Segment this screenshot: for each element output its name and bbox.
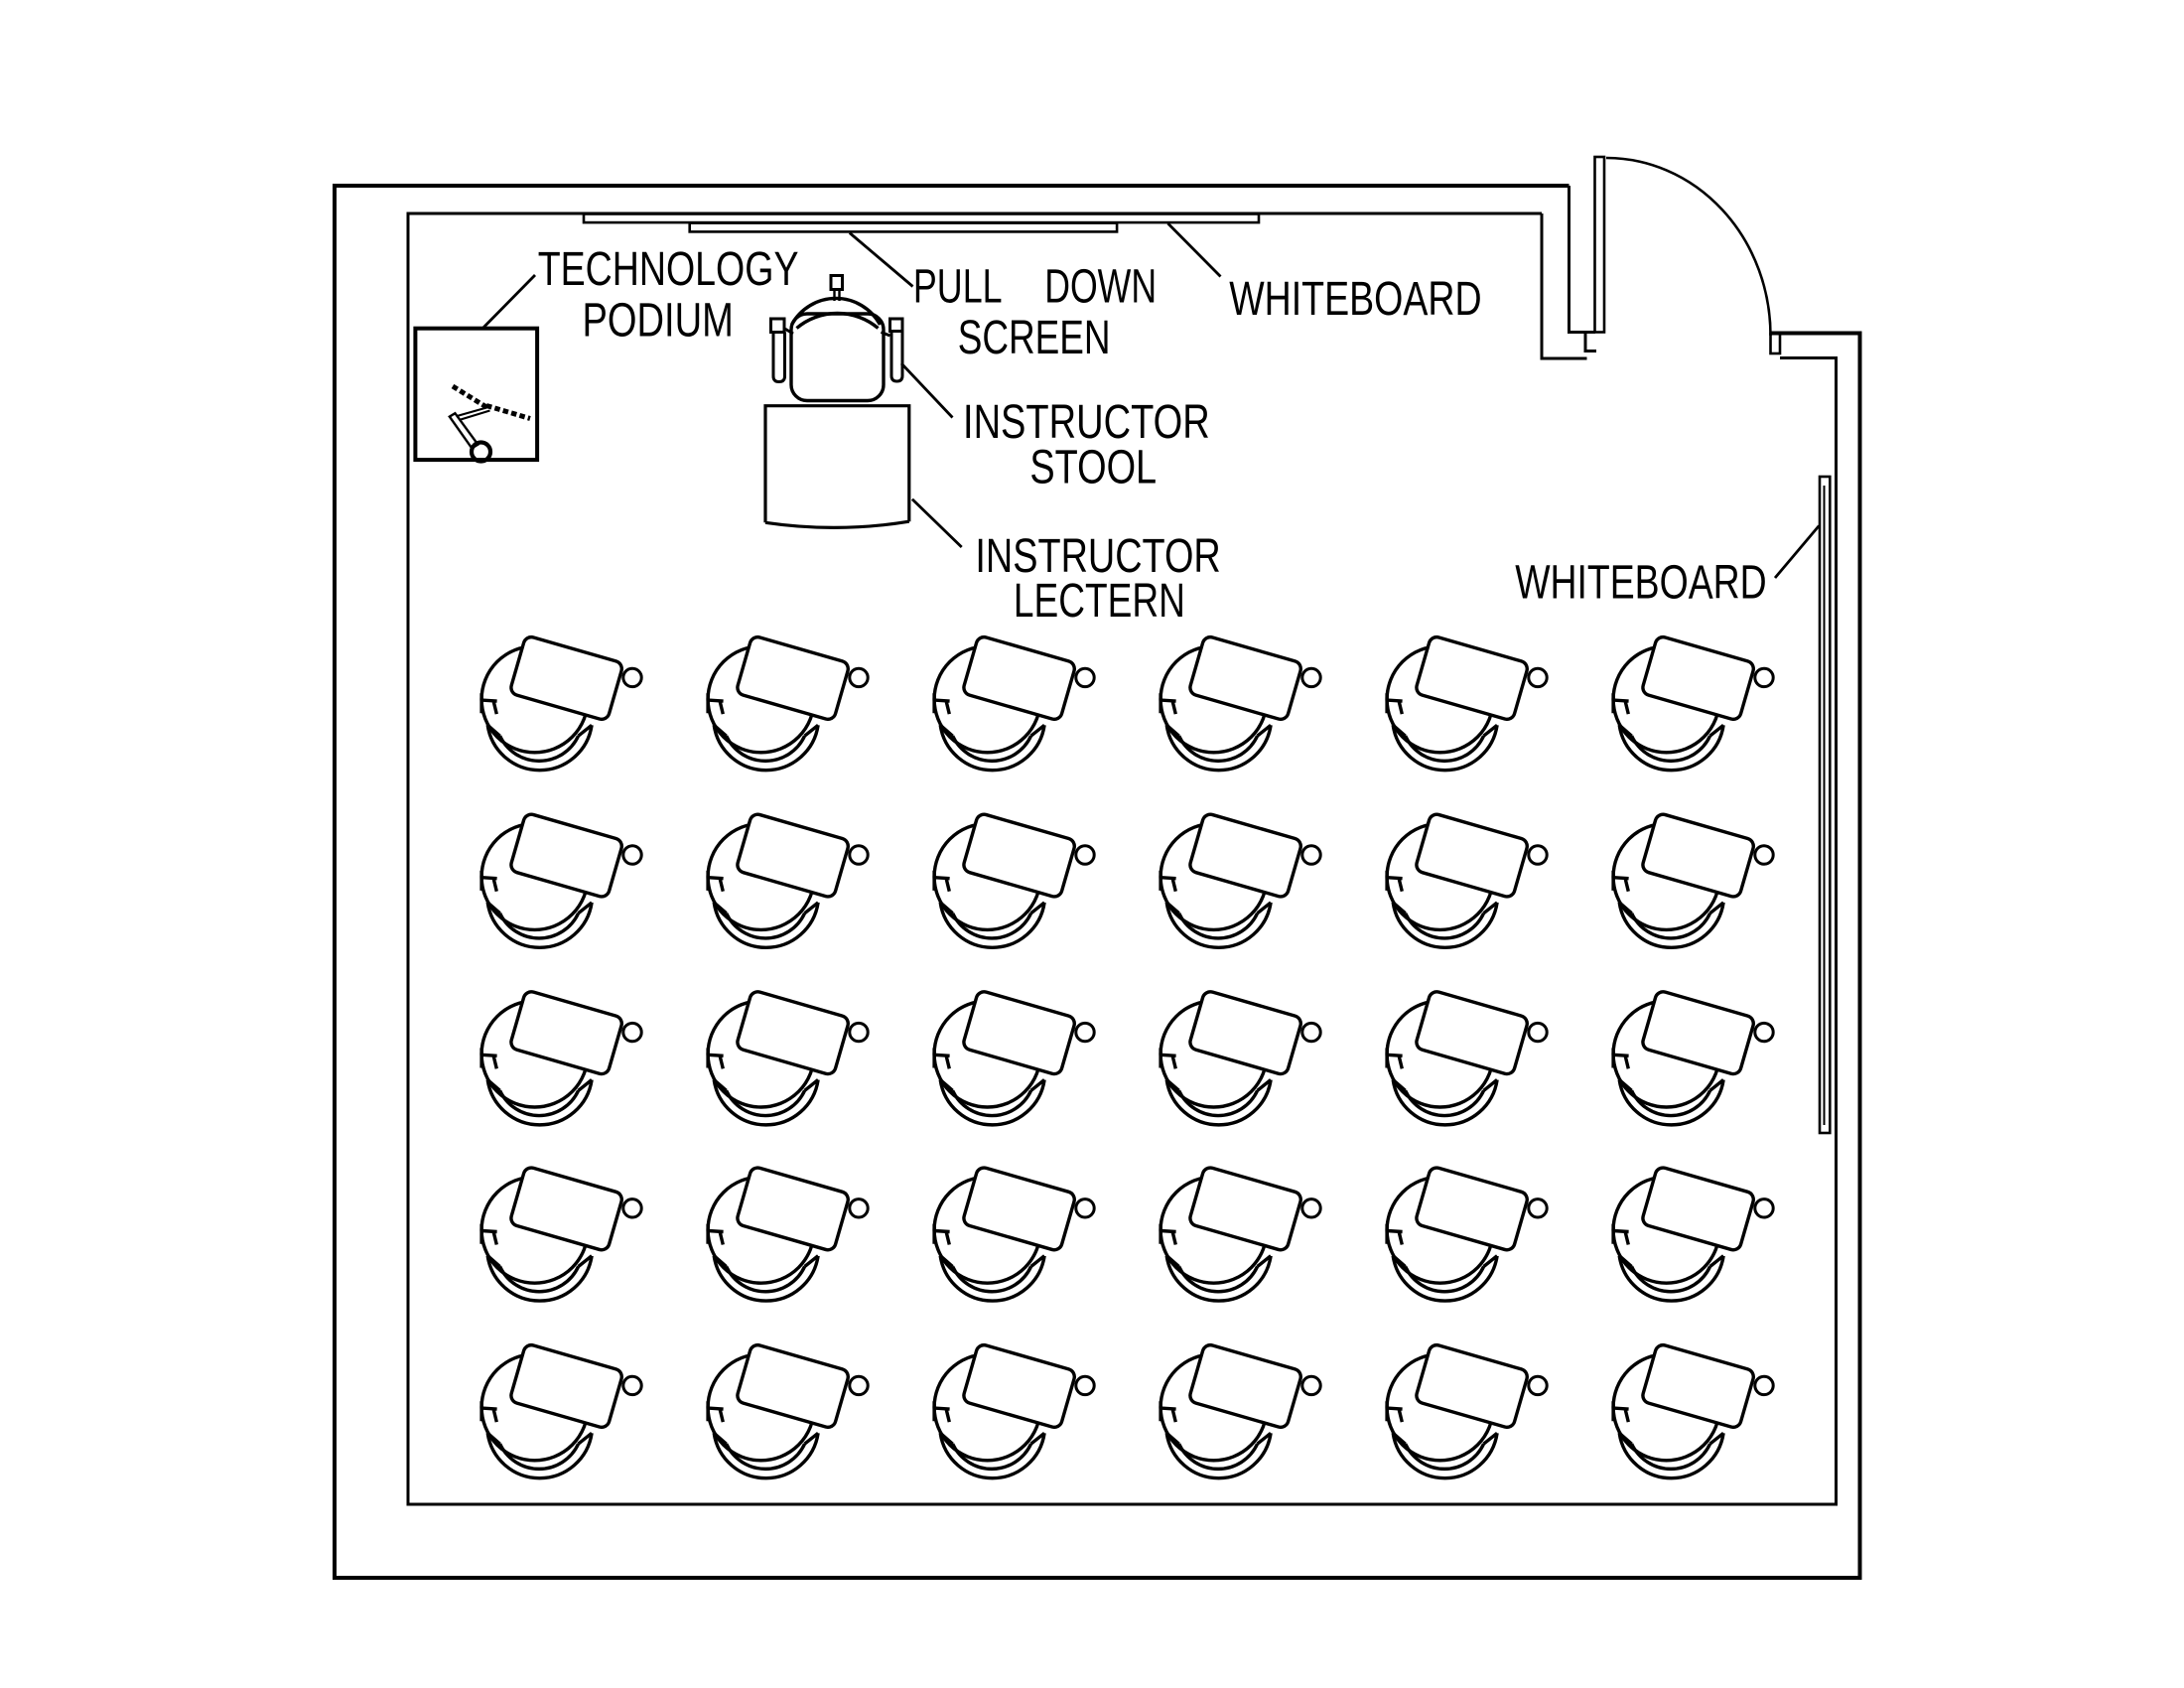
svg-text:TECHNOLOGY: TECHNOLOGY bbox=[538, 243, 799, 296]
svg-text:STOOL: STOOL bbox=[1029, 442, 1157, 494]
svg-text:PULL: PULL bbox=[913, 261, 1003, 314]
svg-text:WHITEBOARD: WHITEBOARD bbox=[1229, 273, 1481, 326]
svg-text:LECTERN: LECTERN bbox=[1014, 575, 1185, 628]
svg-text:WHITEBOARD: WHITEBOARD bbox=[1515, 556, 1767, 609]
svg-text:PODIUM: PODIUM bbox=[583, 294, 734, 347]
svg-text:DOWN: DOWN bbox=[1044, 261, 1157, 314]
svg-text:SCREEN: SCREEN bbox=[958, 312, 1111, 364]
